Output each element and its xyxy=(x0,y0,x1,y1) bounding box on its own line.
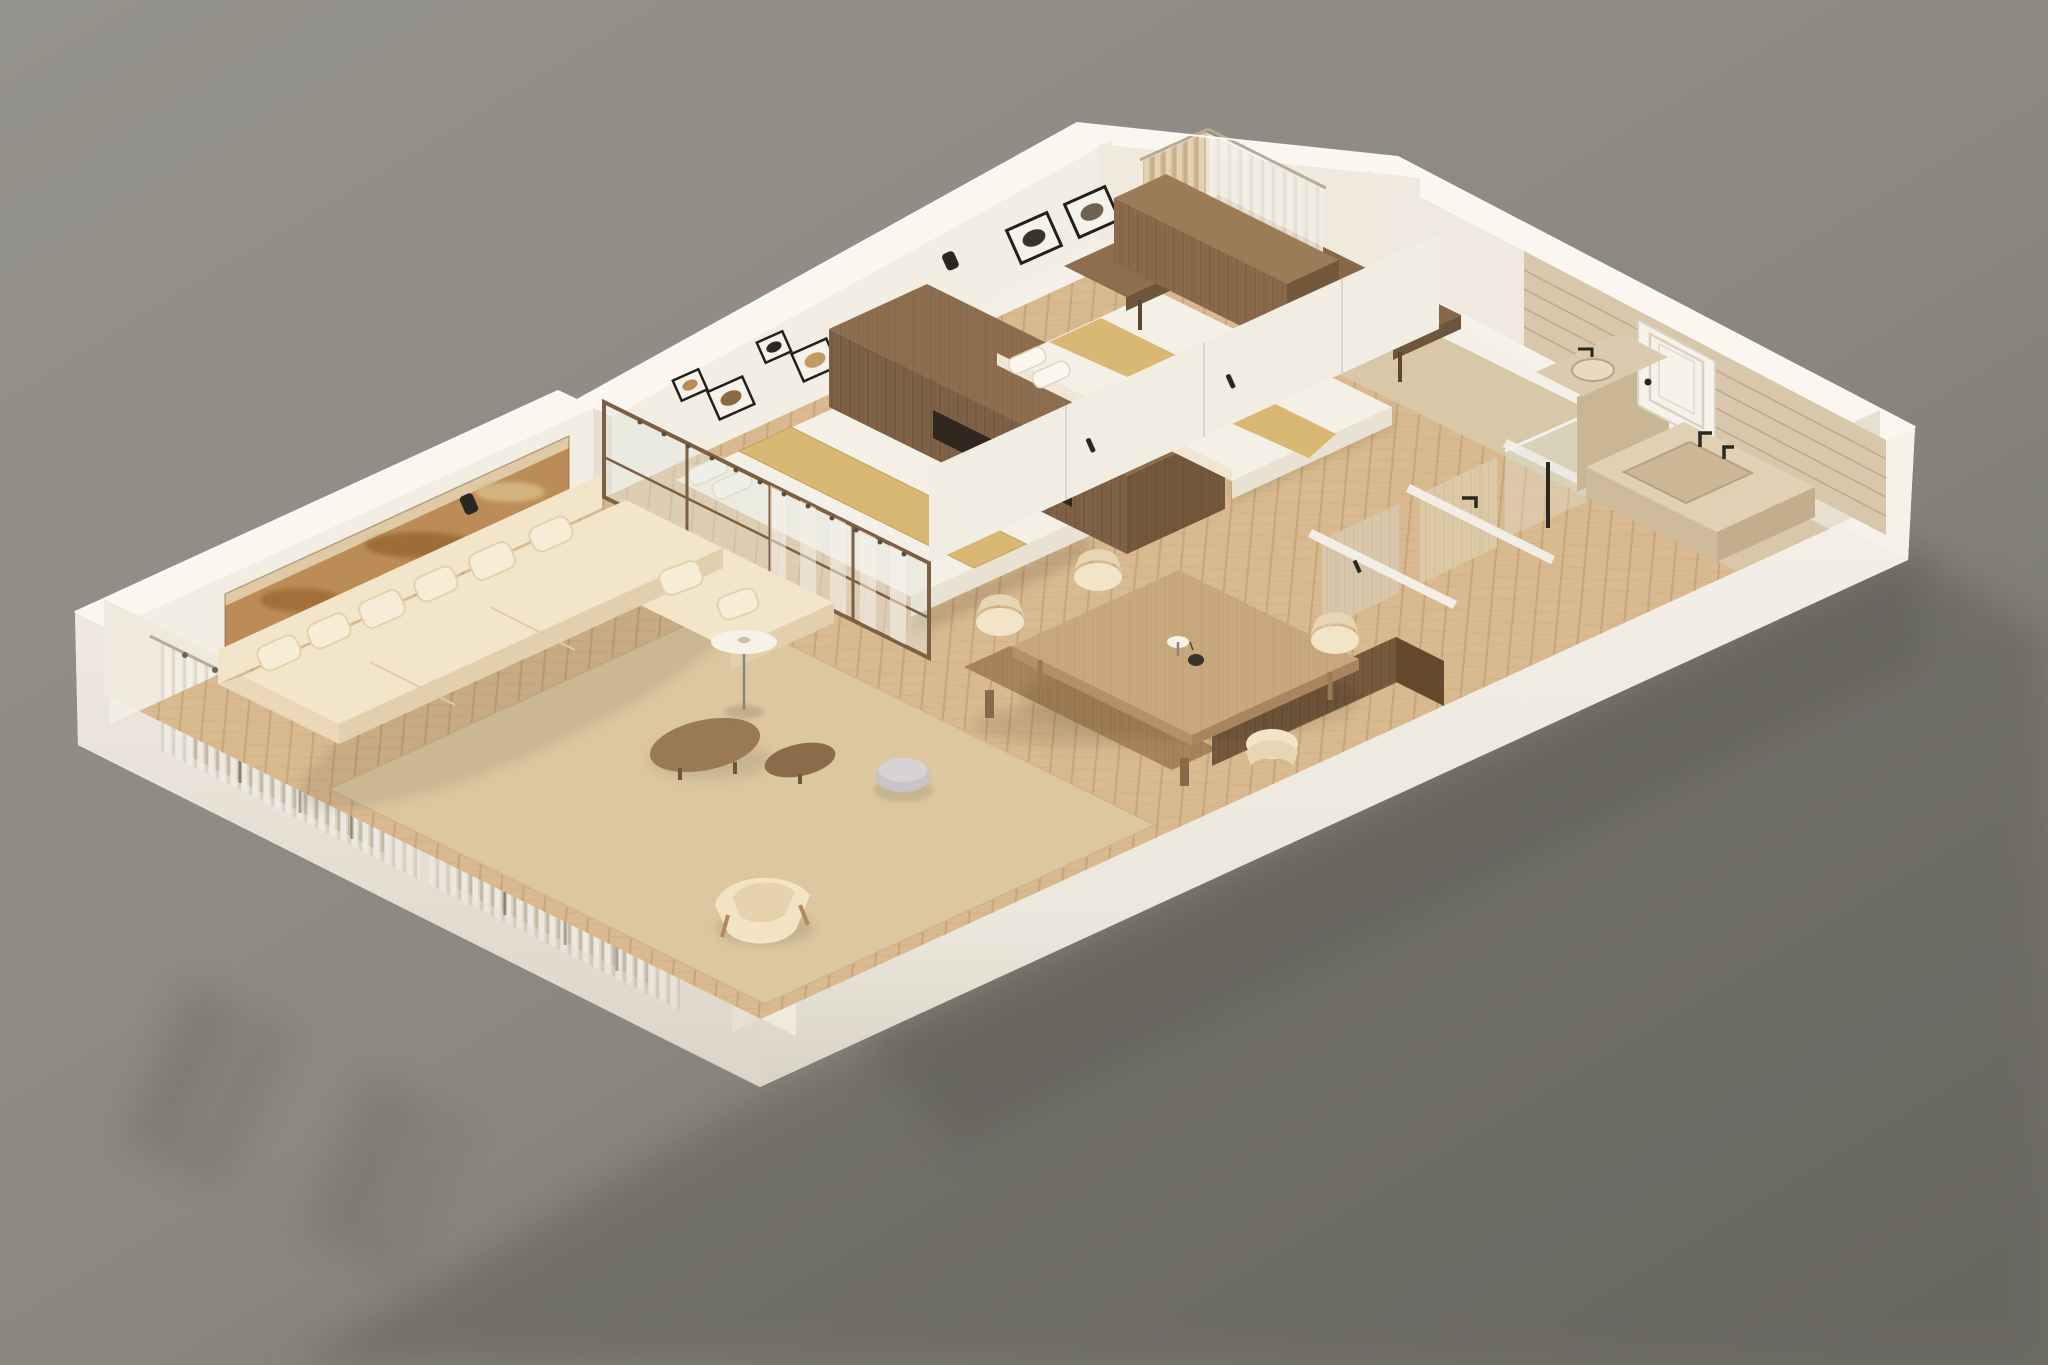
render-stage: 3D isometric cutaway render of a long ap… xyxy=(0,0,2048,1365)
dining-chair xyxy=(1311,612,1359,654)
lounge-armchair xyxy=(715,878,813,944)
render-canvas: 3D isometric cutaway render of a long ap… xyxy=(0,0,2048,1365)
pouf xyxy=(873,758,933,802)
dining-chair xyxy=(1074,549,1122,591)
dining-chair xyxy=(976,594,1024,636)
